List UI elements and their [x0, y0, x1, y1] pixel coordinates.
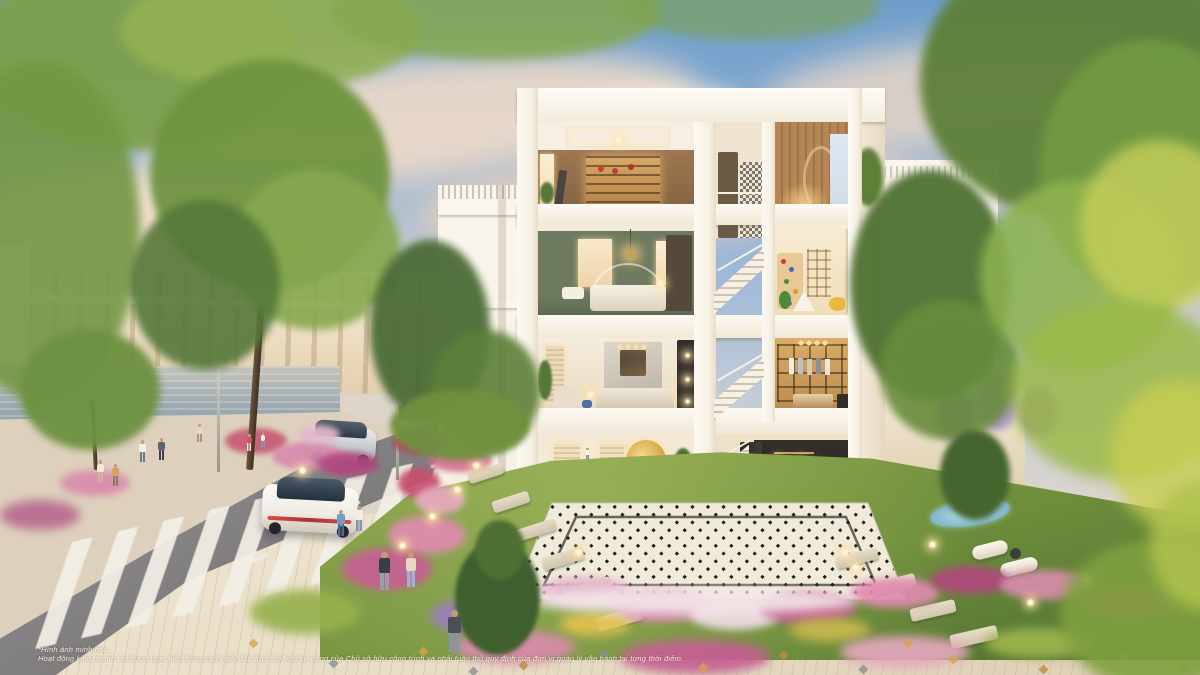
cabinet-light [686, 378, 689, 381]
person-legs [338, 524, 344, 536]
pedestrian [111, 464, 120, 486]
dinosaur-toy [779, 291, 791, 309]
pedestrian-distant [585, 448, 590, 460]
person-legs [247, 443, 251, 451]
person-head [408, 552, 414, 558]
bedroom-chandelier [616, 344, 650, 350]
wall-art [620, 350, 646, 376]
hall-cabinet [718, 152, 738, 238]
person-legs [261, 441, 265, 448]
wall-lamp [658, 281, 663, 286]
floor-slab [517, 315, 852, 338]
garden-light [576, 550, 581, 555]
bedroom-wardrobe [666, 235, 692, 311]
car-rear-window [277, 476, 346, 502]
disclaimer-line2: Hoạt động kinh doanh chỉ được thực hiện … [38, 654, 683, 663]
person-torso [97, 464, 104, 473]
flower-cluster [930, 566, 1010, 594]
garden-light [455, 487, 460, 492]
person-torso [379, 558, 390, 572]
person-legs [113, 476, 119, 486]
cabinet-light [686, 400, 689, 403]
ceiling-cove-light [566, 126, 670, 148]
flower-cluster [528, 588, 858, 614]
person-legs [407, 571, 416, 587]
person-torso [406, 558, 416, 571]
staircase-flight [714, 240, 764, 314]
hanging-clothes [789, 358, 794, 374]
cabinet-light [686, 354, 689, 357]
floor3-playroom [775, 225, 852, 315]
pillows [562, 287, 584, 299]
garden-light [300, 468, 305, 473]
flower-cluster [318, 452, 378, 476]
lattice-screen [740, 162, 762, 238]
foliage-blob [130, 200, 280, 370]
bedroom-plant [538, 360, 552, 400]
floor-slab [517, 204, 852, 225]
gym-plant [540, 182, 554, 204]
foliage-blob [475, 520, 525, 580]
garden-light [843, 550, 848, 555]
pedestrian [138, 440, 147, 462]
linear-pendant [774, 452, 814, 454]
garden-light [474, 463, 479, 468]
foliage-blob [940, 430, 1010, 520]
disclaimer-text: *Hình ảnh minh hoạ. Hoạt động kinh doanh… [38, 645, 683, 663]
side-table [1010, 548, 1021, 559]
pedestrian [246, 434, 253, 451]
person-head [451, 610, 458, 617]
climbing-holds [781, 259, 786, 264]
person-torso [139, 444, 146, 453]
person-torso [448, 617, 460, 633]
flower-cluster [250, 590, 360, 634]
person-torso [337, 514, 344, 524]
garden-light [930, 542, 935, 547]
pendant-cord [630, 229, 631, 251]
person-legs [356, 520, 362, 531]
bed [590, 285, 666, 311]
bedside-lamp [588, 392, 593, 397]
pedestrian [96, 460, 105, 482]
flower-cluster [0, 500, 80, 530]
floor3-bedroom [538, 225, 694, 315]
cornice [438, 207, 526, 215]
balustrade [438, 185, 526, 199]
gym-chandelier [616, 138, 621, 143]
person-legs [98, 472, 104, 482]
person-torso [355, 510, 362, 519]
foliage-blob [20, 330, 160, 450]
flower-cluster [790, 618, 870, 642]
person-legs [586, 455, 589, 461]
ottoman [582, 400, 592, 408]
jogger-woman [404, 552, 418, 587]
landing-railing [716, 192, 762, 194]
person-legs [140, 452, 146, 462]
lounge-chair [554, 386, 580, 408]
boxing-gloves [598, 166, 604, 172]
jogger-man [377, 552, 392, 590]
pedestrian-photographer [354, 506, 364, 531]
closet-chandelier [797, 340, 831, 346]
floor-slab [517, 408, 852, 434]
person-torso [112, 468, 119, 477]
pedestrian [260, 432, 266, 448]
flower-cluster [850, 578, 940, 608]
pendant-lamp [626, 251, 635, 258]
pedestrian [196, 424, 203, 442]
person-torso [158, 442, 165, 451]
garden-light [430, 514, 435, 519]
person-legs [197, 434, 201, 442]
disclaimer-line1: *Hình ảnh minh hoạ. [38, 645, 683, 654]
garden-light [1028, 600, 1033, 605]
foliage-blob [390, 390, 530, 460]
pedestrian [157, 438, 166, 460]
garden-light [400, 543, 405, 548]
flower-cluster [298, 425, 340, 443]
person-legs [380, 573, 389, 590]
flower-cluster [560, 612, 630, 636]
building-column [762, 122, 775, 422]
person-legs [159, 450, 165, 460]
architectural-render: *Hình ảnh minh hoạ. Hoạt động kinh doanh… [0, 0, 1200, 675]
roof-fascia [517, 88, 885, 122]
person-torso [197, 427, 202, 434]
shelf-lattice [807, 249, 831, 297]
pedestrian-blue-shirt [336, 510, 346, 536]
garden-light [853, 565, 858, 570]
